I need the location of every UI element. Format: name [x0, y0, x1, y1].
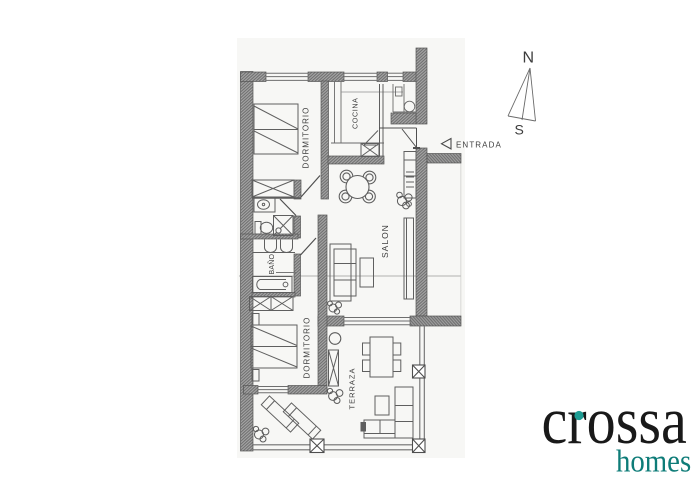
svg-text:TERRAZA: TERRAZA [348, 367, 357, 409]
svg-text:BAÑO: BAÑO [267, 254, 276, 275]
svg-text:SALON: SALON [380, 224, 390, 258]
svg-text:DORMITORIO: DORMITORIO [303, 317, 312, 379]
svg-text:S: S [515, 122, 524, 138]
svg-text:DORMITORIO: DORMITORIO [302, 107, 311, 169]
svg-text:N: N [523, 50, 535, 67]
svg-text:ENTRADA: ENTRADA [456, 141, 502, 150]
svg-text:COCINA: COCINA [351, 97, 360, 129]
svg-text:homes: homes [616, 443, 691, 479]
